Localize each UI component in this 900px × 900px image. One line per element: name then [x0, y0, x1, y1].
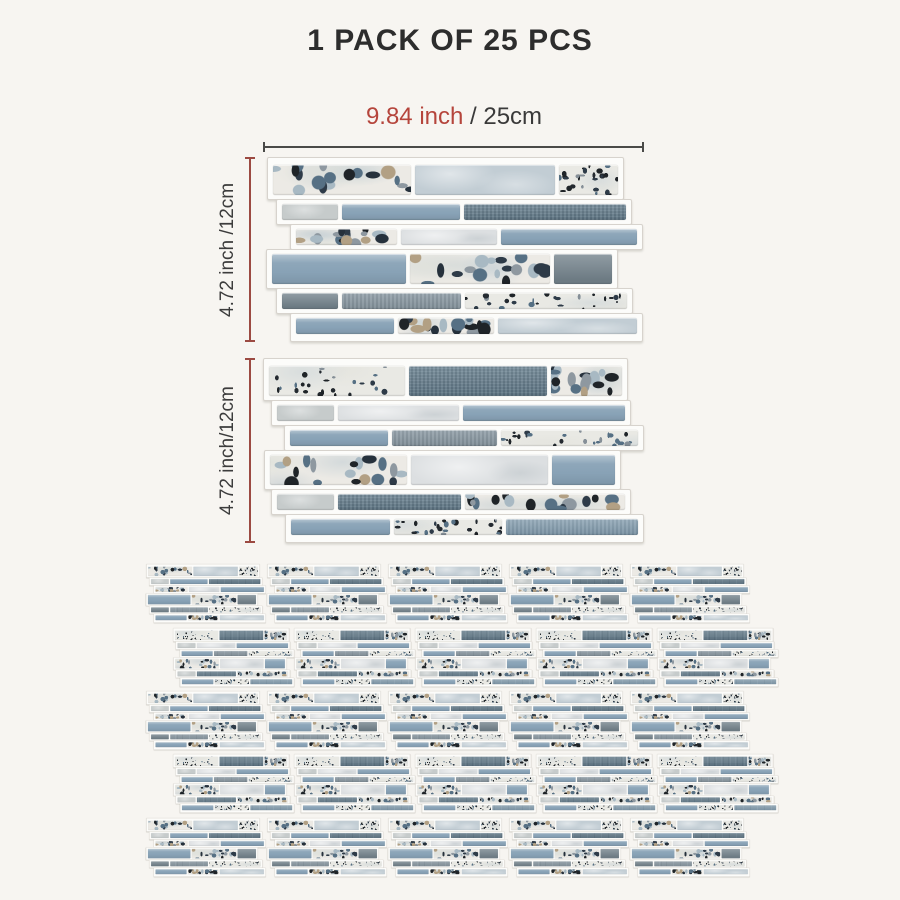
mosaic-tile-terrazzoBig [397, 587, 429, 592]
mosaic-tile-terrazzoFine [336, 805, 370, 810]
mosaic-tile-blue [291, 519, 390, 535]
mosaic-tile-plainWhite [310, 841, 341, 846]
mosaic-tile-grayLight [393, 833, 411, 838]
mosaic-tile-terrazzoBig [518, 841, 550, 846]
tile-row [517, 868, 629, 877]
tile-row [509, 691, 623, 705]
mosaic-tile-plainWhite [681, 643, 719, 648]
tile-panel-design-B [415, 628, 536, 687]
tile-panel-design-A [263, 157, 643, 342]
mosaic-tile-plainLight [435, 821, 480, 831]
tile-row [173, 657, 287, 670]
mosaic-tile-blue [463, 587, 506, 592]
mosaic-tile-grayLight [635, 833, 653, 838]
mosaic-tile-terrazzoBig [511, 567, 555, 577]
mosaic-tile-blue [269, 849, 312, 859]
mosaic-tile-terrazzoBig [265, 631, 288, 641]
tile-row [630, 818, 744, 832]
mosaic-tile-blueDark [330, 833, 382, 838]
tile-row [146, 691, 260, 705]
tile-panel-small [387, 564, 506, 622]
mosaic-tile-blue [639, 869, 670, 874]
mosaic-tile-plainLight [314, 821, 359, 831]
mosaic-tile-terrazzoFine [693, 734, 745, 739]
mosaic-tile-terrazzoFine [336, 679, 370, 684]
mosaic-tile-grayLight [177, 671, 195, 676]
mosaic-tile-blueDark [340, 757, 384, 767]
tile-panel-small [173, 754, 292, 812]
mosaic-tile-terrazzoBig [148, 694, 192, 704]
mosaic-tile-terrazzoBig [175, 785, 219, 795]
mosaic-tile-plainWhite [431, 841, 462, 846]
mosaic-tile-grayDark [601, 722, 619, 732]
mosaic-tile-blue [342, 841, 385, 846]
mosaic-tile-grayMid [214, 651, 247, 656]
mosaic-tile-blue [628, 659, 648, 669]
tile-row [275, 614, 387, 623]
tile-panel-design-A [145, 818, 266, 877]
tile-row [536, 628, 652, 642]
mosaic-tile-grayMid [291, 861, 329, 866]
mosaic-tile-blue [390, 595, 433, 605]
tile-row [630, 720, 742, 733]
mosaic-tile-blue [666, 777, 697, 782]
tile-row [294, 783, 408, 796]
mosaic-tile-terrazzoFine [723, 694, 742, 704]
mosaic-tile-terrazzoBig [659, 659, 703, 669]
mosaic-tile-terrazzoFine [538, 757, 581, 767]
mosaic-tile-terrazzoBig [676, 595, 721, 605]
mosaic-tile-terrazzoBig [309, 869, 340, 874]
tile-row [294, 754, 410, 768]
tile-row [509, 847, 621, 860]
mosaic-tile-terrazzoFine [417, 631, 460, 641]
mosaic-tile-grayMid [214, 777, 247, 782]
mosaic-tile-plainWhite [220, 785, 264, 795]
tile-panel-small [266, 818, 385, 876]
mosaic-tile-terrazzoFine [296, 757, 339, 767]
mosaic-tile-terrazzoBig [155, 841, 187, 846]
tile-row [266, 249, 618, 289]
mosaic-tile-blue [507, 659, 527, 669]
tile-panel-small [294, 754, 413, 812]
tile-row [267, 691, 381, 705]
mosaic-tile-terrazzoFine [417, 757, 460, 767]
mosaic-tile-blue [600, 643, 652, 648]
mosaic-tile-grayLight [540, 797, 558, 802]
pack-grid-row [173, 754, 776, 812]
tile-row [630, 847, 742, 860]
mosaic-tile-terrazzoFine [451, 734, 503, 739]
mosaic-tile-terrazzoFine [360, 694, 379, 704]
mosaic-tile-blueTex [613, 679, 655, 684]
mosaic-tile-blue [221, 841, 264, 846]
tile-panel-small [266, 691, 385, 749]
tile-panel-design-A [145, 691, 266, 750]
tile-row [396, 741, 508, 750]
mosaic-tile-blueDark [461, 631, 505, 641]
tile-panel-small [415, 628, 534, 686]
mosaic-tile-blue [290, 430, 388, 446]
mosaic-tile-grayDark [480, 722, 498, 732]
mosaic-tile-blue [272, 254, 406, 284]
mosaic-tile-grayMid [335, 651, 368, 656]
mosaic-tile-terrazzoBig [721, 671, 772, 676]
mosaic-tile-terrazzoFine [215, 805, 249, 810]
mosaic-tile-plainWhite [189, 714, 220, 719]
mosaic-tile-terrazzoBig [507, 631, 530, 641]
tile-row [664, 804, 778, 813]
pack-grid-row [145, 564, 748, 622]
mosaic-tile-blue [182, 805, 213, 810]
mosaic-tile-blue [584, 714, 627, 719]
mosaic-tile-blueTex [371, 805, 413, 810]
mosaic-tile-blue [533, 579, 571, 584]
tile-panel-design-B [173, 754, 294, 813]
height-dimension-label-2: 4.72 inch/12cm [214, 358, 242, 543]
mosaic-tile-blue [628, 785, 648, 795]
mosaic-tile-terrazzoFine [360, 567, 379, 577]
tile-panel-design-B [415, 754, 536, 813]
mosaic-tile-terrazzoBig [518, 714, 550, 719]
tile-row [285, 514, 644, 543]
mosaic-tile-blue [291, 579, 329, 584]
tile-row [264, 450, 621, 490]
tile-panel-design-A [387, 564, 508, 623]
mosaic-tile-terrazzoFine [370, 777, 414, 782]
mosaic-tile-grayDark [151, 607, 169, 612]
mosaic-tile-terrazzoFine [491, 777, 535, 782]
mosaic-tile-terrazzoBig [639, 714, 671, 719]
width-inch-value: 9.84 inch [366, 103, 463, 130]
mosaic-tile-blueDark [197, 797, 236, 802]
tile-row [396, 868, 508, 877]
tile-row [284, 425, 644, 451]
mosaic-tile-plainWhite [318, 769, 356, 774]
mosaic-tile-terrazzoBig [672, 869, 703, 874]
mosaic-tile-terrazzoBig [434, 722, 479, 732]
tile-panel-small [536, 754, 655, 812]
tile-panel-design-B [536, 628, 657, 687]
mosaic-tile-terrazzoFine [330, 607, 382, 612]
tile-row [536, 754, 652, 768]
tile-row [509, 564, 623, 578]
mosaic-tile-terrazzoBig [430, 869, 461, 874]
mosaic-tile-blueTex [613, 805, 655, 810]
mosaic-tile-terrazzoFine [209, 734, 261, 739]
mosaic-tile-blueDark [219, 631, 263, 641]
tile-row [517, 741, 629, 750]
tile-panel-design-B [294, 754, 415, 813]
mosaic-tile-blue [545, 777, 576, 782]
mosaic-tile-grayMid [170, 734, 208, 739]
mosaic-tile-grayLight [419, 643, 437, 648]
mosaic-tile-blueTex [506, 519, 638, 535]
mosaic-tile-plainLight [193, 567, 238, 577]
mosaic-tile-grayDark [514, 607, 532, 612]
mosaic-tile-blue [639, 742, 670, 747]
mosaic-tile-grayMid [342, 293, 461, 309]
mosaic-tile-grayMid [698, 777, 731, 782]
mosaic-tile-grayDark [514, 734, 532, 739]
mosaic-tile-blueDark [197, 671, 236, 676]
mosaic-tile-grayDark [480, 849, 498, 859]
mosaic-tile-blueDark [582, 631, 626, 641]
mosaic-tile-terrazzoBig [397, 714, 429, 719]
mosaic-tile-blue [170, 833, 208, 838]
tile-panel-small [173, 628, 292, 686]
mosaic-tile-blue [148, 722, 191, 732]
tile-row [275, 868, 387, 877]
mosaic-tile-blueDark [693, 833, 745, 838]
mosaic-tile-blue [721, 643, 773, 648]
pack-grid-row [145, 818, 748, 876]
mosaic-tile-terrazzoBig [386, 631, 409, 641]
mosaic-tile-grayDark [635, 861, 653, 866]
mosaic-tile-grayMid [291, 734, 329, 739]
mosaic-tile-terrazzoFine [699, 805, 733, 810]
mosaic-tile-terrazzoFine [733, 651, 777, 656]
mosaic-tile-blueTex [250, 805, 292, 810]
tile-panel-small [508, 691, 627, 749]
tile-row [275, 741, 387, 750]
mosaic-tile-grayDark [238, 595, 256, 605]
mosaic-tile-blue [342, 587, 385, 592]
mosaic-tile-grayMid [392, 430, 497, 446]
mosaic-tile-grayDark [272, 861, 290, 866]
tile-row [517, 614, 629, 623]
mosaic-tile-plainWhite [338, 405, 459, 421]
mosaic-tile-blue [654, 706, 692, 711]
mosaic-tile-terrazzoFine [249, 651, 293, 656]
mosaic-tile-blue [269, 722, 312, 732]
mosaic-tile-blue [501, 229, 637, 245]
mosaic-tile-plainWhite [704, 659, 748, 669]
mosaic-tile-blueTex [250, 679, 292, 684]
tile-row [271, 489, 631, 515]
mosaic-tile-terrazzoBig [358, 797, 409, 802]
mosaic-tile-grayDark [393, 607, 411, 612]
mosaic-tile-terrazzoFine [269, 366, 405, 396]
tile-panel-large-2 [263, 358, 644, 543]
tile-row [630, 691, 744, 705]
mosaic-tile-terrazzoFine [602, 821, 621, 831]
mosaic-tile-blueDark [451, 706, 503, 711]
tile-row [657, 783, 771, 796]
mosaic-tile-blueDark [451, 833, 503, 838]
mosaic-tile-plainLight [341, 742, 385, 747]
mosaic-tile-plainLight [677, 567, 722, 577]
mosaic-tile-blue [397, 869, 428, 874]
mosaic-tile-terrazzoBig [430, 615, 461, 620]
mosaic-tile-blue [412, 706, 450, 711]
mosaic-tile-blueDark [439, 671, 478, 676]
mosaic-tile-blueTex [734, 805, 776, 810]
mosaic-tile-terrazzoFine [501, 430, 638, 446]
mosaic-tile-blueDark [330, 579, 382, 584]
mosaic-tile-terrazzoBig [269, 567, 313, 577]
mosaic-tile-terrazzoFine [572, 734, 624, 739]
tile-panel-design-A [145, 564, 266, 623]
mosaic-tile-terrazzoFine [699, 679, 733, 684]
mosaic-tile-terrazzoBig [659, 785, 703, 795]
mosaic-tile-blue [705, 714, 748, 719]
mosaic-tile-terrazzoBig [188, 742, 219, 747]
mosaic-tile-blueDark [582, 757, 626, 767]
tile-row [657, 754, 773, 768]
mosaic-tile-terrazzoBig [417, 785, 461, 795]
mosaic-tile-grayLight [272, 579, 290, 584]
mosaic-tile-terrazzoBig [628, 757, 651, 767]
tile-panel-small [387, 818, 506, 876]
mosaic-tile-blue [155, 869, 186, 874]
mosaic-tile-terrazzoBig [398, 318, 494, 334]
mosaic-tile-blue [148, 595, 191, 605]
mosaic-tile-plainWhite [560, 769, 598, 774]
tile-panel-design-A [508, 691, 629, 750]
mosaic-tile-blue [463, 841, 506, 846]
mosaic-tile-terrazzoBig [237, 671, 288, 676]
tile-row [263, 358, 628, 401]
tile-panel-small [508, 564, 627, 622]
mosaic-tile-grayLight [151, 706, 169, 711]
mosaic-tile-plainLight [462, 615, 506, 620]
mosaic-tile-grayDark [238, 849, 256, 859]
mosaic-tile-blue [291, 833, 329, 838]
pack-grid-row [145, 691, 748, 749]
mosaic-tile-grayDark [282, 293, 338, 309]
mosaic-tile-terrazzoBig [632, 821, 676, 831]
mosaic-tile-blue [552, 455, 615, 485]
mosaic-tile-plainLight [435, 567, 480, 577]
tile-row [509, 720, 621, 733]
mosaic-tile-grayLight [151, 833, 169, 838]
mosaic-tile-blue [533, 833, 571, 838]
mosaic-tile-blue [386, 659, 406, 669]
pack-grid-row [173, 628, 776, 686]
tile-row [536, 783, 650, 796]
tile-row [267, 720, 379, 733]
mosaic-tile-grayMid [654, 734, 692, 739]
mosaic-tile-grayMid [533, 607, 571, 612]
tile-panel-design-A [266, 564, 387, 623]
mosaic-tile-plainWhite [189, 841, 220, 846]
mosaic-tile-grayLight [635, 579, 653, 584]
mosaic-tile-plainWhite [341, 785, 385, 795]
mosaic-tile-terrazzoBig [672, 615, 703, 620]
mosaic-tile-grayMid [291, 607, 329, 612]
tile-panel-design-B [294, 628, 415, 687]
mosaic-tile-terrazzoFine [733, 777, 777, 782]
tile-row [415, 628, 531, 642]
tile-row [267, 564, 381, 578]
mosaic-tile-plainLight [220, 869, 264, 874]
mosaic-tile-plainLight [314, 694, 359, 704]
tile-row [276, 199, 632, 225]
tile-row [180, 678, 294, 687]
mosaic-tile-grayMid [456, 651, 489, 656]
mosaic-tile-terrazzoBig [430, 742, 461, 747]
mosaic-tile-terrazzoBig [465, 494, 625, 510]
mosaic-tile-terrazzoBig [538, 659, 582, 669]
tile-panel-design-A [629, 818, 750, 877]
tile-row [509, 593, 621, 606]
tile-row [388, 818, 502, 832]
mosaic-tile-terrazzoFine [481, 694, 500, 704]
mosaic-tile-blueDark [572, 706, 624, 711]
mosaic-tile-plainWhite [197, 643, 235, 648]
mosaic-tile-terrazzoBig [390, 821, 434, 831]
mosaic-tile-grayLight [540, 643, 558, 648]
tile-row [290, 313, 643, 342]
mosaic-tile-terrazzoBig [313, 722, 358, 732]
mosaic-tile-blueDark [451, 579, 503, 584]
mosaic-tile-grayLight [177, 643, 195, 648]
mosaic-tile-terrazzoBig [269, 694, 313, 704]
mosaic-tile-grayDark [480, 595, 498, 605]
mosaic-tile-terrazzoFine [572, 607, 624, 612]
mosaic-tile-blue [632, 722, 675, 732]
mosaic-tile-blue [296, 318, 394, 334]
mosaic-tile-terrazzoBig [676, 722, 721, 732]
mosaic-tile-grayDark [722, 595, 740, 605]
mosaic-tile-blue [182, 651, 213, 656]
mosaic-tile-blue [397, 742, 428, 747]
tile-panel-small [657, 754, 776, 812]
mosaic-tile-plainLight [704, 869, 748, 874]
mosaic-tile-grayDark [722, 722, 740, 732]
tile-row [388, 720, 500, 733]
mosaic-tile-grayLight [393, 579, 411, 584]
mosaic-tile-plainWhite [220, 659, 264, 669]
mosaic-tile-blue [170, 706, 208, 711]
tile-row [267, 157, 624, 200]
mosaic-tile-grayDark [601, 595, 619, 605]
mosaic-tile-grayLight [272, 706, 290, 711]
tile-row [388, 691, 502, 705]
mosaic-tile-blue [390, 849, 433, 859]
mosaic-tile-blue [518, 742, 549, 747]
tile-row [415, 657, 529, 670]
tile-row [146, 818, 260, 832]
mosaic-tile-terrazzoBig [721, 797, 772, 802]
tile-panel-small [629, 818, 748, 876]
mosaic-tile-terrazzoFine [209, 607, 261, 612]
mosaic-tile-terrazzoBig [600, 671, 651, 676]
mosaic-tile-terrazzoFine [659, 757, 702, 767]
mosaic-tile-terrazzoBig [192, 722, 237, 732]
mosaic-tile-terrazzoFine [693, 607, 745, 612]
mosaic-tile-grayLight [298, 643, 316, 648]
mosaic-tile-terrazzoFine [451, 607, 503, 612]
mosaic-tile-blue [511, 849, 554, 859]
tile-row [271, 400, 631, 426]
mosaic-tile-blueDark [560, 671, 599, 676]
mosaic-tile-blue [705, 587, 748, 592]
mosaic-tile-plainLight [435, 694, 480, 704]
mosaic-tile-plainWhite [439, 769, 477, 774]
mosaic-tile-blue [654, 579, 692, 584]
mosaic-tile-blueDark [318, 797, 357, 802]
mosaic-tile-terrazzoFine [239, 694, 258, 704]
mosaic-tile-blue [666, 805, 697, 810]
mosaic-tile-plainWhite [583, 785, 627, 795]
mosaic-tile-terrazzoFine [394, 519, 502, 535]
mosaic-tile-terrazzoBig [749, 631, 772, 641]
mosaic-tile-blueDark [560, 797, 599, 802]
mosaic-tile-plainLight [220, 615, 264, 620]
mosaic-tile-terrazzoBig [434, 849, 479, 859]
